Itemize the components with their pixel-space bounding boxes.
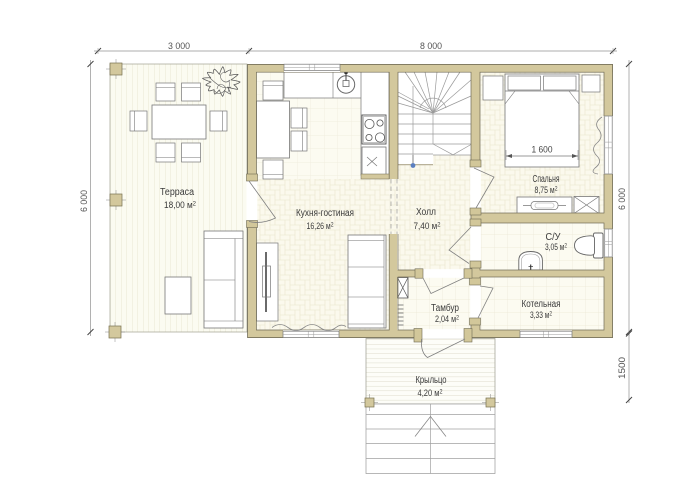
- svg-text:18,00 м2: 18,00 м2: [164, 200, 196, 210]
- svg-text:Терраса: Терраса: [160, 187, 194, 198]
- svg-text:3 000: 3 000: [168, 41, 190, 51]
- svg-text:1 600: 1 600: [532, 145, 553, 155]
- svg-text:Кухня-гостиная: Кухня-гостиная: [296, 208, 354, 219]
- svg-text:Спальня: Спальня: [533, 174, 560, 185]
- svg-text:6 000: 6 000: [79, 190, 89, 212]
- svg-text:3,05 м2: 3,05 м2: [545, 242, 567, 252]
- svg-text:6 000: 6 000: [617, 188, 627, 210]
- svg-text:16,26 м2: 16,26 м2: [307, 221, 334, 231]
- svg-text:Холл: Холл: [416, 207, 436, 218]
- svg-text:Крыльцо: Крыльцо: [416, 375, 447, 386]
- svg-text:2,04 м2: 2,04 м2: [435, 314, 459, 324]
- svg-text:3,33 м2: 3,33 м2: [530, 310, 552, 320]
- svg-text:7,40 м2: 7,40 м2: [414, 221, 441, 231]
- svg-text:8 000: 8 000: [420, 41, 442, 51]
- svg-text:4,20 м2: 4,20 м2: [418, 388, 443, 398]
- svg-text:1500: 1500: [617, 357, 627, 379]
- svg-text:Котельная: Котельная: [522, 299, 561, 310]
- svg-text:8,75 м2: 8,75 м2: [535, 185, 558, 195]
- svg-text:Тамбур: Тамбур: [431, 302, 459, 314]
